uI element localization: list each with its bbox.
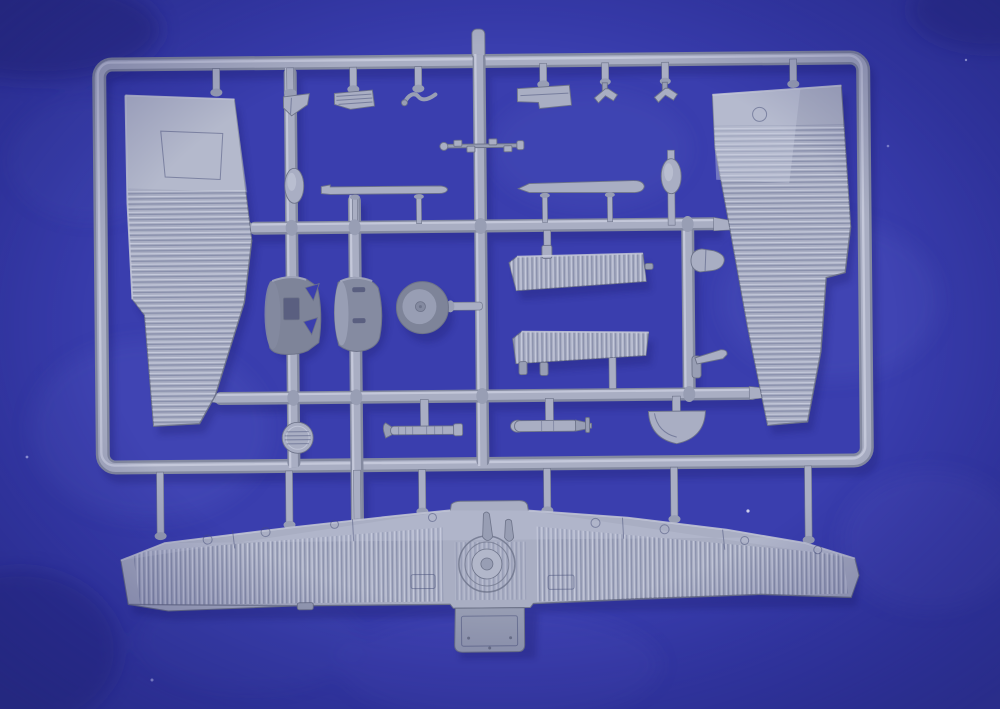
photo-stage [0, 0, 1000, 709]
photo-vignette [0, 0, 1000, 709]
sprue-photo [0, 0, 1000, 709]
